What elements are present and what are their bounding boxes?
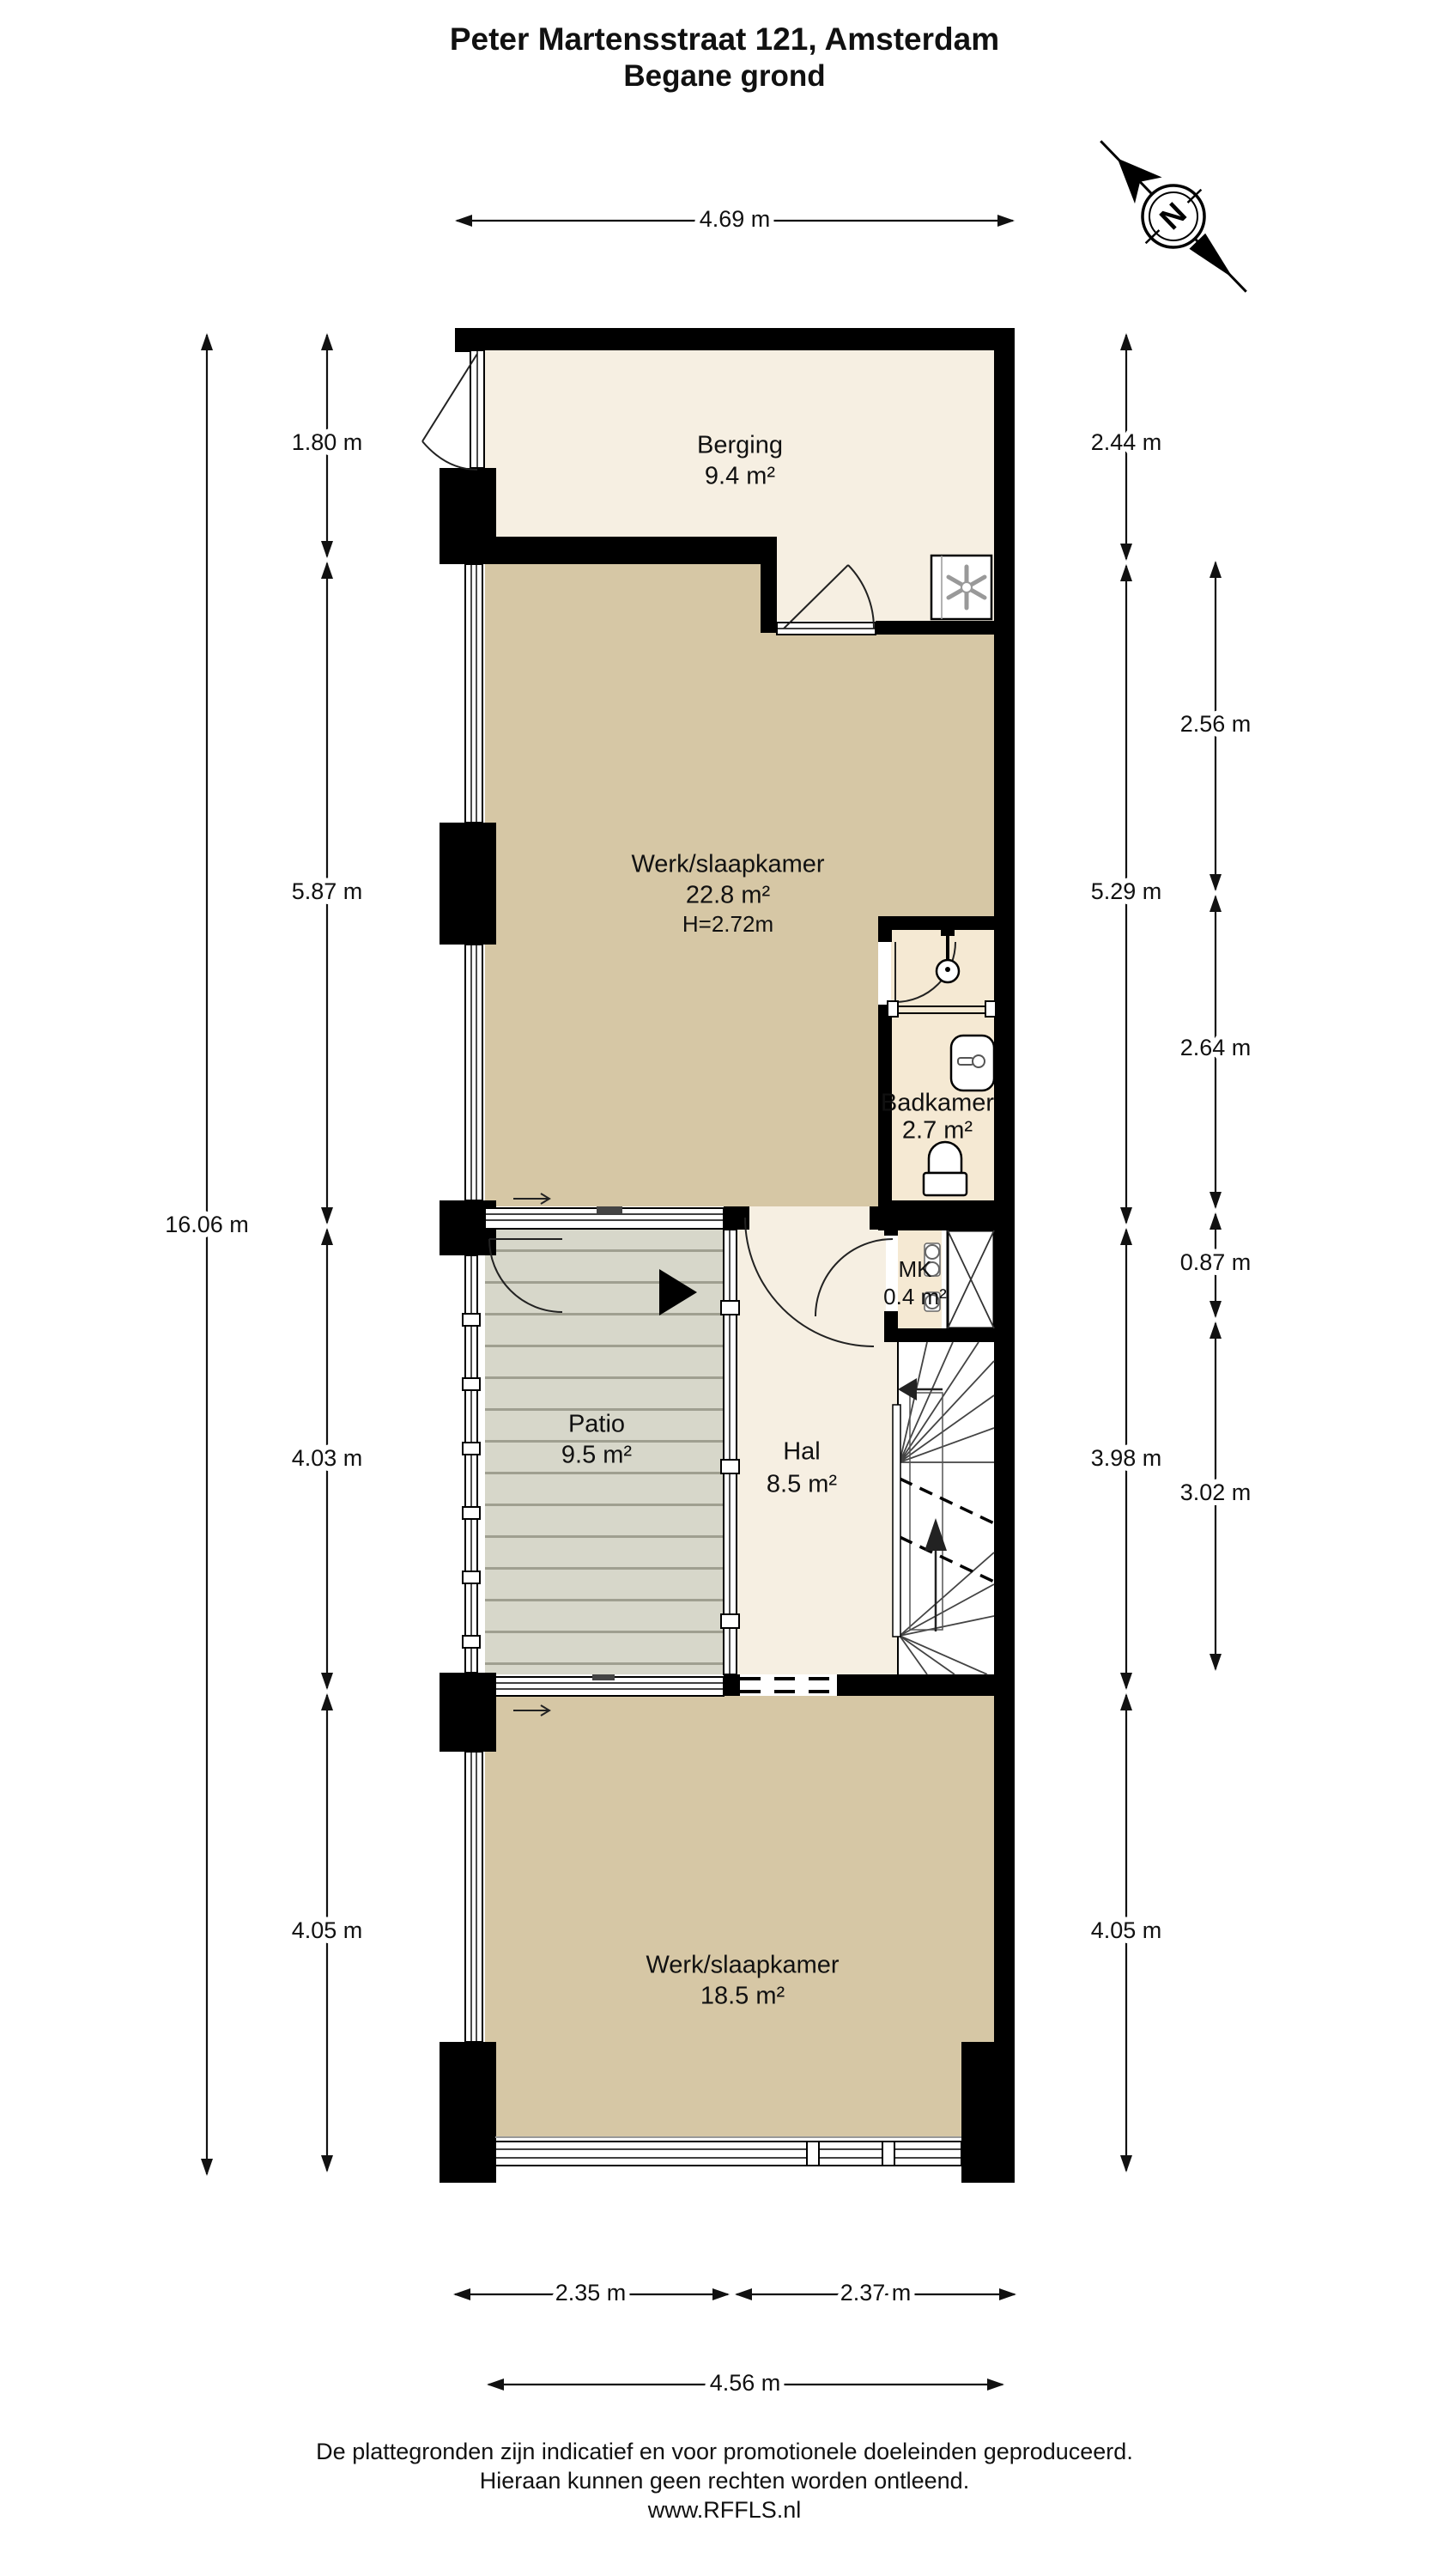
dim-right-inner-2: 3.98 m [1091, 1445, 1162, 1471]
disclaimer-line-1: De plattegronden zijn indicatief en voor… [0, 2437, 1449, 2466]
room-floors [485, 350, 994, 2138]
left-window-1 [465, 564, 482, 823]
dim-right-outer-3: 3.02 m [1180, 1479, 1252, 1505]
dim-right-outer-1: 2.64 m [1180, 1035, 1252, 1060]
lower-room-sliding-door [495, 1674, 724, 1696]
washing-machine-icon [931, 556, 991, 619]
hal-label: Hal [783, 1438, 821, 1466]
werkkamer-onder-label: Werk/slaapkamer [646, 1952, 839, 1979]
badkamer-label: Badkamer [881, 1090, 995, 1117]
werkkamer-boven-label: Werk/slaapkamer [631, 851, 824, 878]
dim-bottom-seg-1: 2.37 m [840, 2280, 912, 2306]
dim-right-inner-1: 5.29 m [1091, 878, 1162, 904]
hal-opening-dashed [740, 1674, 837, 1696]
patio-label: Patio [568, 1411, 625, 1438]
floor-plan: Berging 9.4 m² Werk/slaapkamer 22.8 m² H… [0, 0, 1449, 2576]
dim-left-seg-3: 4.05 m [292, 1917, 363, 1943]
patio-sliding-door [485, 1206, 724, 1229]
berging-exterior-door [422, 350, 484, 470]
werkkamer-boven-height: H=2.72m [682, 911, 773, 937]
dim-bottom-seg-0: 2.35 m [555, 2280, 627, 2306]
berging-area: 9.4 m² [705, 463, 776, 490]
dim-left-total: 16.06 m [165, 1212, 249, 1237]
mk-area: 0.4 m² [883, 1284, 947, 1309]
bottom-window [495, 2137, 961, 2166]
dim-right-outer-0: 2.56 m [1180, 711, 1252, 737]
patio-hal-glass-wall [721, 1230, 739, 1674]
left-window-3 [465, 1752, 482, 2042]
patio-fence [463, 1255, 480, 1673]
dim-right-inner-0: 2.44 m [1091, 429, 1162, 455]
disclaimer-line-2: Hieraan kunnen geen rechten worden ontle… [0, 2466, 1449, 2495]
dim-right-inner-3: 4.05 m [1091, 1917, 1162, 1943]
dim-left-seg-1: 5.87 m [292, 878, 363, 904]
toilet-icon [924, 1142, 967, 1195]
hal-door-opening-floor [748, 1206, 871, 1230]
left-window-2 [465, 945, 482, 1200]
dim-right-outer-2: 0.87 m [1180, 1249, 1252, 1275]
mk-label: MK [899, 1256, 933, 1282]
berging-label: Berging [697, 432, 783, 459]
disclaimer-url: www.RFFLS.nl [0, 2495, 1449, 2524]
werkkamer-onder-area: 18.5 m² [700, 1983, 785, 2010]
compass-icon: N [1073, 114, 1274, 319]
dim-left-seg-2: 4.03 m [292, 1445, 363, 1471]
dim-top-total: 4.69 m [700, 206, 771, 232]
sink-icon [951, 1036, 994, 1091]
dim-left-seg-0: 1.80 m [292, 429, 363, 455]
stair-rail [893, 1405, 900, 1637]
hal-area: 8.5 m² [767, 1471, 838, 1498]
shaft [948, 1230, 994, 1328]
badkamer-area: 2.7 m² [902, 1117, 973, 1145]
patio-area: 9.5 m² [561, 1442, 633, 1469]
werkslaapkamer-onder-floor [485, 1696, 994, 2138]
dim-bottom-total: 4.56 m [710, 2370, 781, 2396]
werkkamer-boven-area: 22.8 m² [686, 882, 771, 909]
disclaimer: De plattegronden zijn indicatief en voor… [0, 2437, 1449, 2524]
